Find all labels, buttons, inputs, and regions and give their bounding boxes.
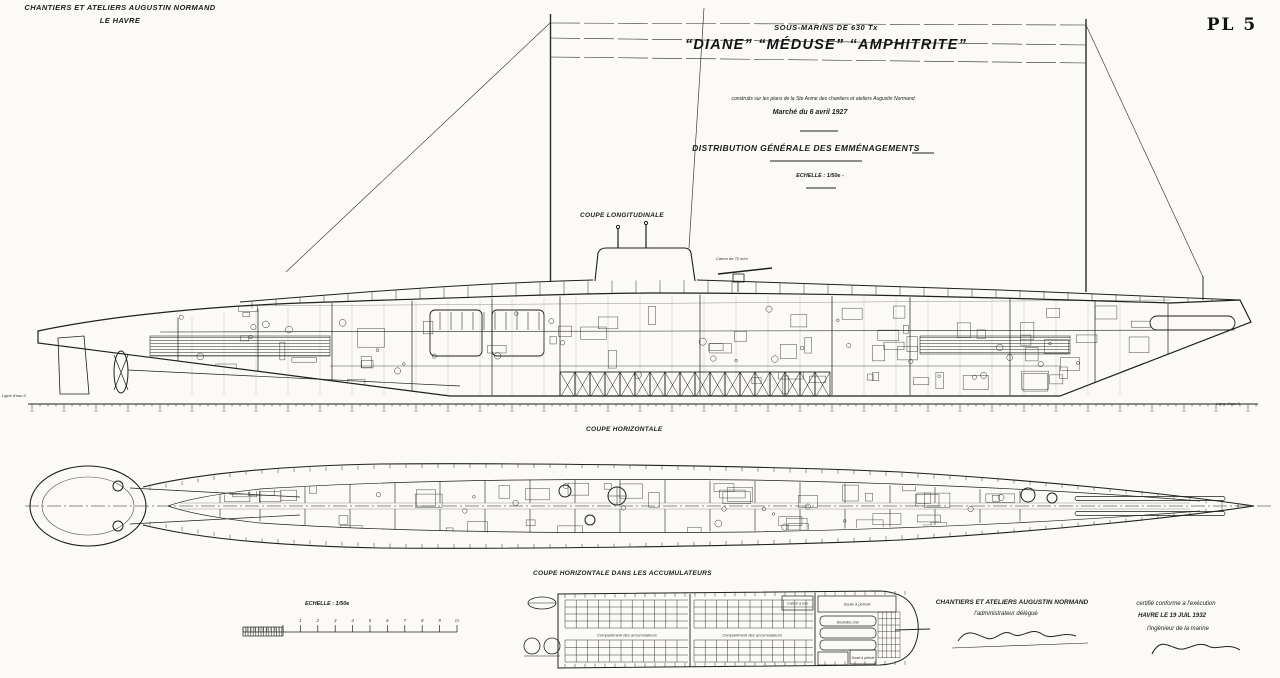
baseline-and-ticks [28, 404, 1258, 411]
scale-bar-label: ECHELLE : 1/50e [305, 601, 349, 607]
svg-text:6: 6 [386, 618, 389, 623]
class-line: SOUS-MARINS DE 630 Tx [774, 24, 878, 32]
gun-label: Canon de 75 m/m [716, 257, 748, 261]
conning-tower [595, 248, 695, 281]
company-name: CHANTIERS ET ATELIERS AUGUSTIN NORMAND [24, 4, 215, 12]
bow-racks [920, 336, 1070, 354]
certified-date: HAVRE LE 19 JUIL 1932 [1138, 613, 1206, 620]
svg-text:3: 3 [334, 618, 337, 623]
svg-text:2: 2 [316, 618, 320, 623]
label-longitudinal-section: COUPE LONGITUDINALE [580, 212, 664, 219]
builder-signature-company: CHANTIERS ET ATELIERS AUGUSTIN NORMAND [936, 599, 1089, 606]
acc-label-1: Compartiment des accumulateurs [597, 633, 657, 638]
engineer-signature [1152, 644, 1240, 654]
horizontal-section-drawing [25, 464, 1272, 548]
bow-torpedo-tube [1150, 316, 1235, 330]
deck-hatches [559, 485, 1057, 525]
air-flask-2 [820, 628, 876, 638]
svg-text:9: 9 [438, 618, 441, 623]
engineer-role: l'ingénieur de la marine [1147, 626, 1209, 633]
deck-casing-line [240, 280, 1240, 302]
built-line: construits sur les plans de la Ste Anme … [731, 97, 914, 103]
blueprint-sheet: Compartiment des accumulateurs Compartim… [0, 0, 1280, 678]
title-block-rules [770, 131, 934, 188]
air-flasks-label: Bouteilles d'air [837, 621, 860, 625]
engine-stbd [492, 310, 544, 356]
svg-text:4: 4 [351, 618, 354, 623]
signature-flourishes [895, 629, 1240, 654]
drawing-title: DISTRIBUTION GÉNÉRALE DES EMMÉNAGEMENTS [692, 144, 920, 153]
ship-names-title: “DIANE” “MÉDUSE” “AMPHITRITE” [685, 38, 967, 54]
stern-racks [150, 336, 330, 356]
plate-number: PL 5 [1207, 16, 1257, 35]
fuel-tank-label-2: Soute à pétrole [852, 656, 875, 660]
plan-casing-top [143, 464, 1254, 506]
left-auxiliary-fittings [524, 597, 560, 656]
plan-innerhull-bottom [168, 506, 1200, 533]
svg-text:8: 8 [421, 618, 424, 623]
plan-room-detail [180, 479, 1190, 540]
waterline-label-right: Ligne d'eau 0 [1216, 402, 1240, 406]
graphic-scale-bar: 123456789m [243, 618, 459, 636]
waterline-label-left: Ligne d'eau 0 [2, 394, 26, 398]
plan-innerhull-top [168, 479, 1200, 506]
label-accumulator-section: COUPE HORIZONTALE DANS LES ACCUMULATEURS [533, 570, 712, 577]
svg-text:5: 5 [369, 618, 372, 623]
company-city: LE HAVRE [100, 17, 141, 25]
air-flask-3 [820, 640, 876, 650]
acc-label-2: Compartiment des accumulateurs [722, 633, 782, 638]
svg-text:m: m [455, 618, 459, 623]
fuel-tank-label: Soute à pétrole [843, 602, 871, 607]
deck-gun [718, 268, 772, 292]
accumulator-section-drawing: Compartiment des accumulateurs Compartim… [524, 591, 918, 668]
certified-line: certifié conforme a l'exécution [1136, 601, 1215, 608]
contract-line: Marché du 6 avril 1927 [773, 109, 848, 117]
builder-signature [958, 631, 1076, 641]
water-tank-label: Caisse à eau [787, 602, 808, 606]
label-horizontal-section: COUPE HORIZONTALE [586, 426, 662, 433]
longitudinal-section-drawing [28, 221, 1258, 411]
svg-text:1: 1 [299, 618, 302, 623]
builder-signature-role: l'administrateur délégué [974, 611, 1038, 618]
svg-text:7: 7 [404, 618, 407, 623]
engine-port [430, 310, 482, 356]
title-scale-line: ECHELLE : 1/50e - [796, 173, 844, 179]
